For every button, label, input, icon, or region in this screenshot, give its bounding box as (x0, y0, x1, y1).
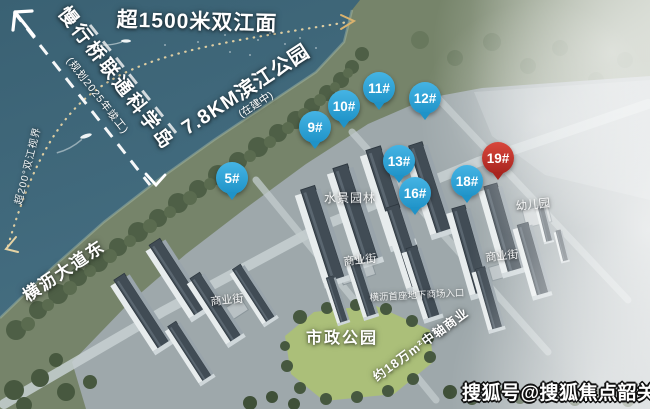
marker-18: 18# (451, 165, 483, 197)
marker-label: 18# (456, 174, 479, 189)
marker-5: 5# (216, 162, 248, 194)
marker-label: 9# (307, 120, 322, 135)
marker-label: 19# (487, 151, 510, 166)
marker-16: 16# (399, 177, 431, 209)
label-civic-park: 市政公园 (306, 331, 378, 347)
marker-12: 12# (409, 82, 441, 114)
watermark: 搜狐号@搜狐焦点韶关站 (462, 378, 650, 405)
marker-label: 11# (368, 81, 390, 96)
marker-label: 13# (388, 154, 411, 169)
marker-10: 10# (328, 90, 360, 122)
label-top-banner: 超1500米双江面 (116, 9, 277, 34)
marker-19: 19# (482, 142, 514, 174)
marker-13: 13# (383, 145, 415, 177)
marker-label: 12# (414, 91, 437, 106)
marker-11: 11# (363, 72, 395, 104)
marker-label: 5# (224, 171, 239, 186)
marker-9: 9# (299, 111, 331, 143)
aerial-masterplan-image: 超1500米双江面 慢行桥联通科学岛 (规划2025年竣工) 7.8KM滨江公园… (0, 0, 650, 409)
marker-label: 16# (404, 186, 427, 201)
label-water-garden: 水景园林 (324, 192, 376, 204)
marker-label: 10# (333, 99, 356, 114)
